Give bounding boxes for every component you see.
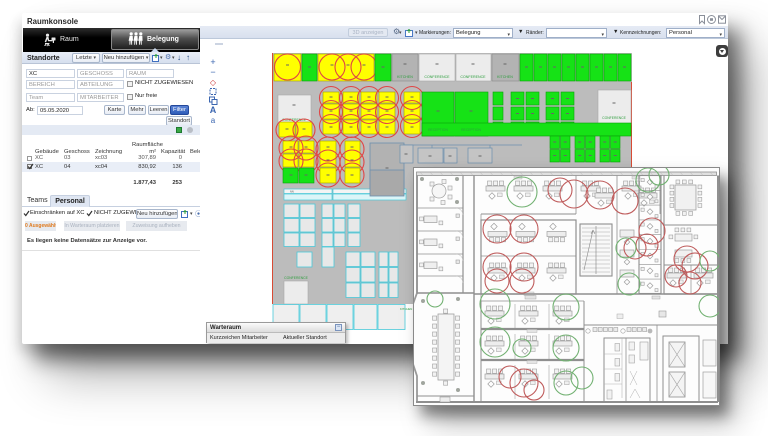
svg-text:NN: NN: [290, 190, 294, 194]
svg-text:CONFERENCE: CONFERENCE: [460, 75, 486, 79]
svg-text:CONFERENCE: CONFERENCE: [424, 75, 450, 79]
svg-text:KITCHEN: KITCHEN: [397, 75, 413, 79]
svg-text:KITCHEN: KITCHEN: [400, 307, 412, 311]
svg-text:RECEPTION: RECEPTION: [461, 128, 481, 132]
svg-text:CONFERENCE: CONFERENCE: [602, 116, 626, 120]
svg-text:KITCHEN: KITCHEN: [497, 75, 513, 79]
svg-text:RECEPTION: RECEPTION: [428, 128, 448, 132]
svg-text:CONFERENCE: CONFERENCE: [284, 276, 308, 280]
